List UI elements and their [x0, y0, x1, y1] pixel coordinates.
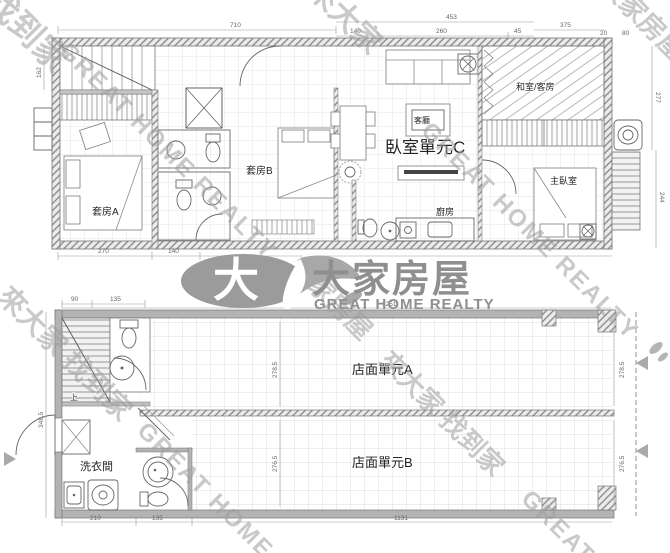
washer-icon — [614, 120, 642, 150]
wall — [352, 180, 356, 241]
dim-260: 260 — [436, 28, 447, 35]
room-label-master: 主臥室 — [550, 175, 577, 186]
logo-character: 大 — [213, 254, 259, 306]
upper-floor-plan: 套房A 套房B 臥室單元C 客廳 廚房 主臥室 和室/客房 710 453 14… — [34, 14, 665, 260]
store-divider-wall — [140, 410, 614, 416]
room-label-laundry: 洗衣間 — [80, 459, 113, 473]
dim-348: 348.5 — [38, 411, 45, 428]
dim-278a: 278.5 — [272, 361, 279, 378]
room-label-store-b: 店面單元B — [352, 455, 413, 470]
elevator-shaft-icon — [186, 88, 222, 128]
dim-453: 453 — [446, 14, 457, 21]
leaf-swoosh-icon — [656, 351, 669, 363]
dim-20: 20 — [600, 30, 608, 37]
dim-278b: 278.5 — [619, 361, 626, 378]
dim-140b: 140 — [168, 248, 179, 255]
triangle-marker-icon — [4, 452, 16, 466]
bed-suite-b-icon — [278, 128, 334, 198]
entry-door-arc — [16, 415, 55, 455]
floor-plan-drawing: 套房A 套房B 臥室單元C 客廳 廚房 主臥室 和室/客房 710 453 14… — [0, 0, 670, 553]
dim-135b: 135 — [152, 515, 163, 522]
room-label-suite-b: 套房B — [246, 164, 273, 177]
wall — [478, 46, 482, 241]
brand-name-en: GREAT HOME REALTY — [314, 296, 495, 313]
brand-name-cn: 大家房屋 — [312, 259, 472, 301]
wall — [152, 90, 158, 249]
room-label-suite-a: 套房A — [92, 205, 119, 218]
sofa-icon — [386, 50, 470, 84]
dim-90: 90 — [71, 296, 79, 303]
dim-277: 277 — [654, 92, 661, 103]
dim-80: 80 — [622, 30, 630, 37]
brand-logo: 大 大家房屋 GREAT HOME REALTY — [181, 247, 495, 313]
dim-375: 375 — [560, 22, 571, 29]
plant-icon — [339, 161, 361, 183]
closet-slats-icon — [482, 120, 604, 146]
bathroom-lower-top — [110, 318, 150, 392]
bed-suite-a-icon — [64, 156, 142, 230]
dim-276b: 276.5 — [619, 455, 626, 472]
dim-244: 244 — [658, 192, 665, 203]
stairs-up-label: 上 — [70, 393, 78, 402]
room-label-tatami: 和室/客房 — [516, 81, 555, 92]
dim-210: 210 — [90, 515, 101, 522]
stairs-right-icon — [612, 152, 640, 230]
room-label-kitchen: 廚房 — [436, 206, 454, 217]
leaf-swoosh-icon — [647, 340, 664, 356]
dim-45: 45 — [514, 28, 522, 35]
tatami-room — [482, 46, 604, 146]
dim-276a: 276.5 — [272, 455, 279, 472]
wall — [334, 88, 338, 241]
dim-710: 710 — [230, 22, 241, 29]
dim-270: 270 — [98, 248, 109, 255]
left-window — [34, 108, 52, 150]
dim-1131: 1131 — [394, 515, 408, 522]
floor-plan-page: 套房A 套房B 臥室單元C 客廳 廚房 主臥室 和室/客房 710 453 14… — [0, 0, 670, 553]
dim-135t: 135 — [110, 296, 121, 303]
